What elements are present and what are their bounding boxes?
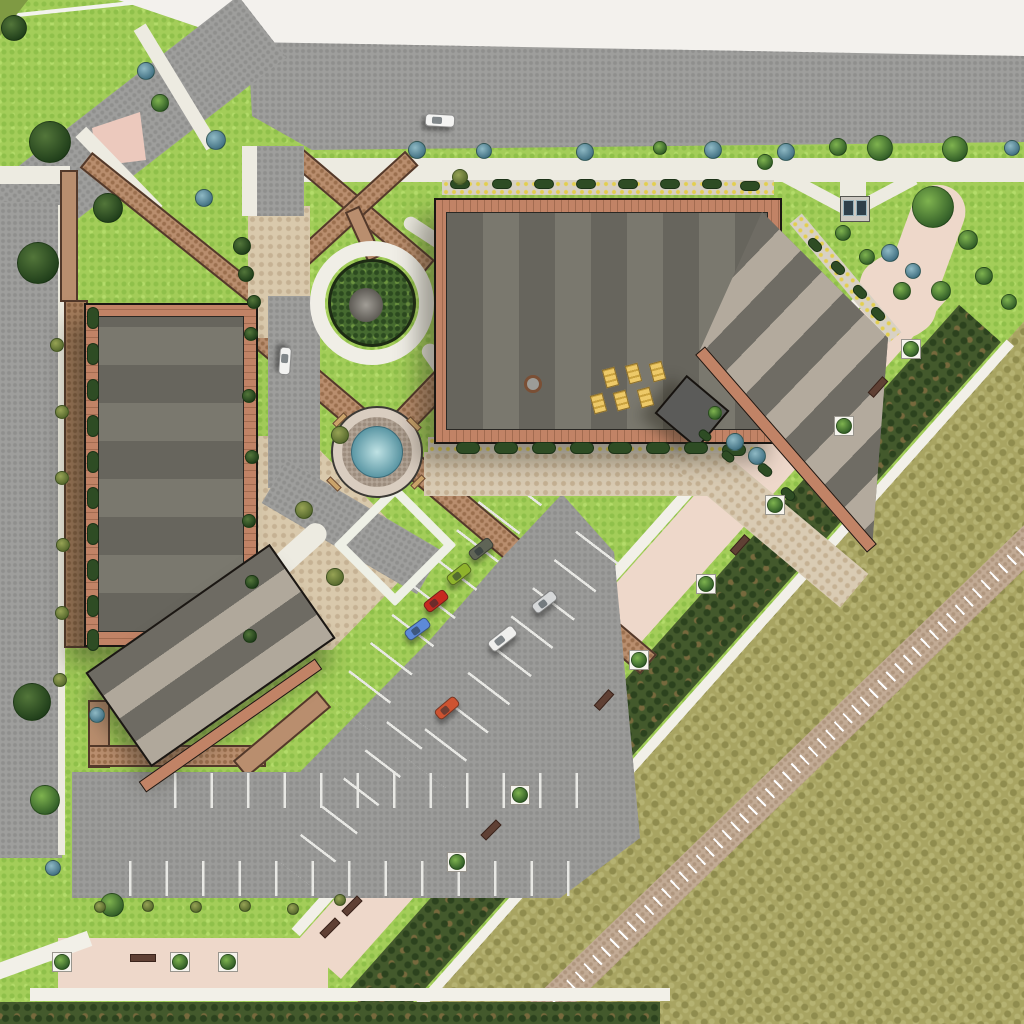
firepit	[524, 375, 542, 393]
shrub	[87, 379, 99, 401]
car-glass	[474, 545, 485, 556]
tree	[55, 606, 69, 620]
tree	[137, 62, 155, 80]
internal-road-mid	[268, 296, 320, 488]
tree	[13, 683, 51, 721]
tree	[245, 575, 259, 589]
fountain-water	[351, 426, 403, 478]
tree	[50, 338, 64, 352]
tree	[777, 143, 795, 161]
car-glass	[452, 570, 463, 581]
tree	[331, 426, 349, 444]
tree	[242, 389, 256, 403]
tree	[829, 138, 847, 156]
tree	[244, 327, 258, 341]
tree	[867, 135, 893, 161]
tree	[631, 652, 647, 668]
tree	[233, 237, 251, 255]
tree	[206, 130, 226, 150]
shrub	[576, 179, 596, 189]
shrub	[660, 179, 680, 189]
tree	[881, 244, 899, 262]
tree	[708, 406, 722, 420]
tree	[408, 141, 426, 159]
tree	[172, 954, 188, 970]
tree	[576, 143, 594, 161]
parking-stalls-south-top	[140, 773, 610, 808]
shrub	[492, 179, 512, 189]
shrub	[87, 343, 99, 365]
tree	[903, 341, 919, 357]
tree	[220, 954, 236, 970]
tree	[476, 143, 492, 159]
tree	[726, 433, 744, 451]
tree	[245, 450, 259, 464]
tree	[1001, 294, 1017, 310]
tree	[55, 405, 69, 419]
tree	[89, 707, 105, 723]
car-glass	[493, 634, 506, 646]
utility-cabinet	[856, 200, 867, 216]
shrub	[618, 179, 638, 189]
tree	[30, 785, 60, 815]
tree	[1004, 140, 1020, 156]
tree	[94, 901, 106, 913]
tree	[151, 94, 169, 112]
shrub	[494, 442, 518, 454]
car-glass	[432, 116, 442, 124]
tree	[512, 787, 528, 803]
shrub	[570, 442, 594, 454]
tree	[748, 447, 766, 465]
tree	[238, 266, 254, 282]
shrub	[702, 179, 722, 189]
car-glass	[429, 597, 440, 608]
tree	[195, 189, 213, 207]
tree	[942, 136, 968, 162]
shrub	[87, 523, 99, 545]
west-street	[0, 202, 62, 858]
tree	[653, 141, 667, 155]
circular-garden-mound	[349, 288, 383, 322]
tree	[53, 673, 67, 687]
shrub	[740, 181, 760, 191]
tree	[190, 901, 202, 913]
shrub	[87, 559, 99, 581]
tree	[54, 954, 70, 970]
tree	[45, 860, 61, 876]
tree	[1, 15, 27, 41]
tree	[295, 501, 313, 519]
tree	[859, 249, 875, 265]
shrub	[646, 442, 670, 454]
internal-road-north	[256, 146, 304, 216]
tree	[449, 854, 465, 870]
shrub	[684, 442, 708, 454]
tree	[452, 169, 468, 185]
tree	[243, 629, 257, 643]
tree	[142, 900, 154, 912]
car	[278, 347, 292, 376]
shrub	[87, 487, 99, 509]
shrub	[87, 629, 99, 651]
shrub	[608, 442, 632, 454]
tree	[836, 418, 852, 434]
tree	[704, 141, 722, 159]
utility-cabinet	[843, 200, 854, 216]
tree	[767, 497, 783, 513]
site-plan-canvas	[0, 0, 1024, 1024]
tree	[239, 900, 251, 912]
tree	[17, 242, 59, 284]
tree	[698, 576, 714, 592]
tree	[835, 225, 851, 241]
tree	[931, 281, 951, 301]
tree	[905, 263, 921, 279]
promenade-bottom	[58, 938, 328, 988]
paver-path-west-stub	[60, 170, 78, 302]
tree	[242, 514, 256, 528]
tree	[757, 154, 773, 170]
shrub	[532, 442, 556, 454]
tree	[958, 230, 978, 250]
shrub	[87, 415, 99, 437]
tree	[326, 568, 344, 586]
tree	[56, 538, 70, 552]
tree	[912, 186, 954, 228]
car-glass	[440, 704, 451, 715]
shrub	[87, 307, 99, 329]
shrub	[534, 179, 554, 189]
tree	[55, 471, 69, 485]
walk-beside-road-north	[242, 146, 257, 216]
bench	[130, 954, 156, 962]
sidewalk-strip-bottom	[30, 988, 670, 1001]
car-glass	[409, 625, 420, 636]
tree	[93, 193, 123, 223]
shrub	[87, 451, 99, 473]
parking-stalls-south-bottom	[95, 861, 600, 896]
car-glass	[281, 353, 289, 362]
tree	[247, 295, 261, 309]
car-glass	[536, 598, 547, 609]
tree	[334, 894, 346, 906]
shrub	[87, 595, 99, 617]
shrub	[456, 442, 480, 454]
tree	[29, 121, 71, 163]
car	[425, 113, 456, 128]
tree	[893, 282, 911, 300]
tree	[975, 267, 993, 285]
tree	[287, 903, 299, 915]
hedge-band-bottom	[0, 1002, 660, 1024]
